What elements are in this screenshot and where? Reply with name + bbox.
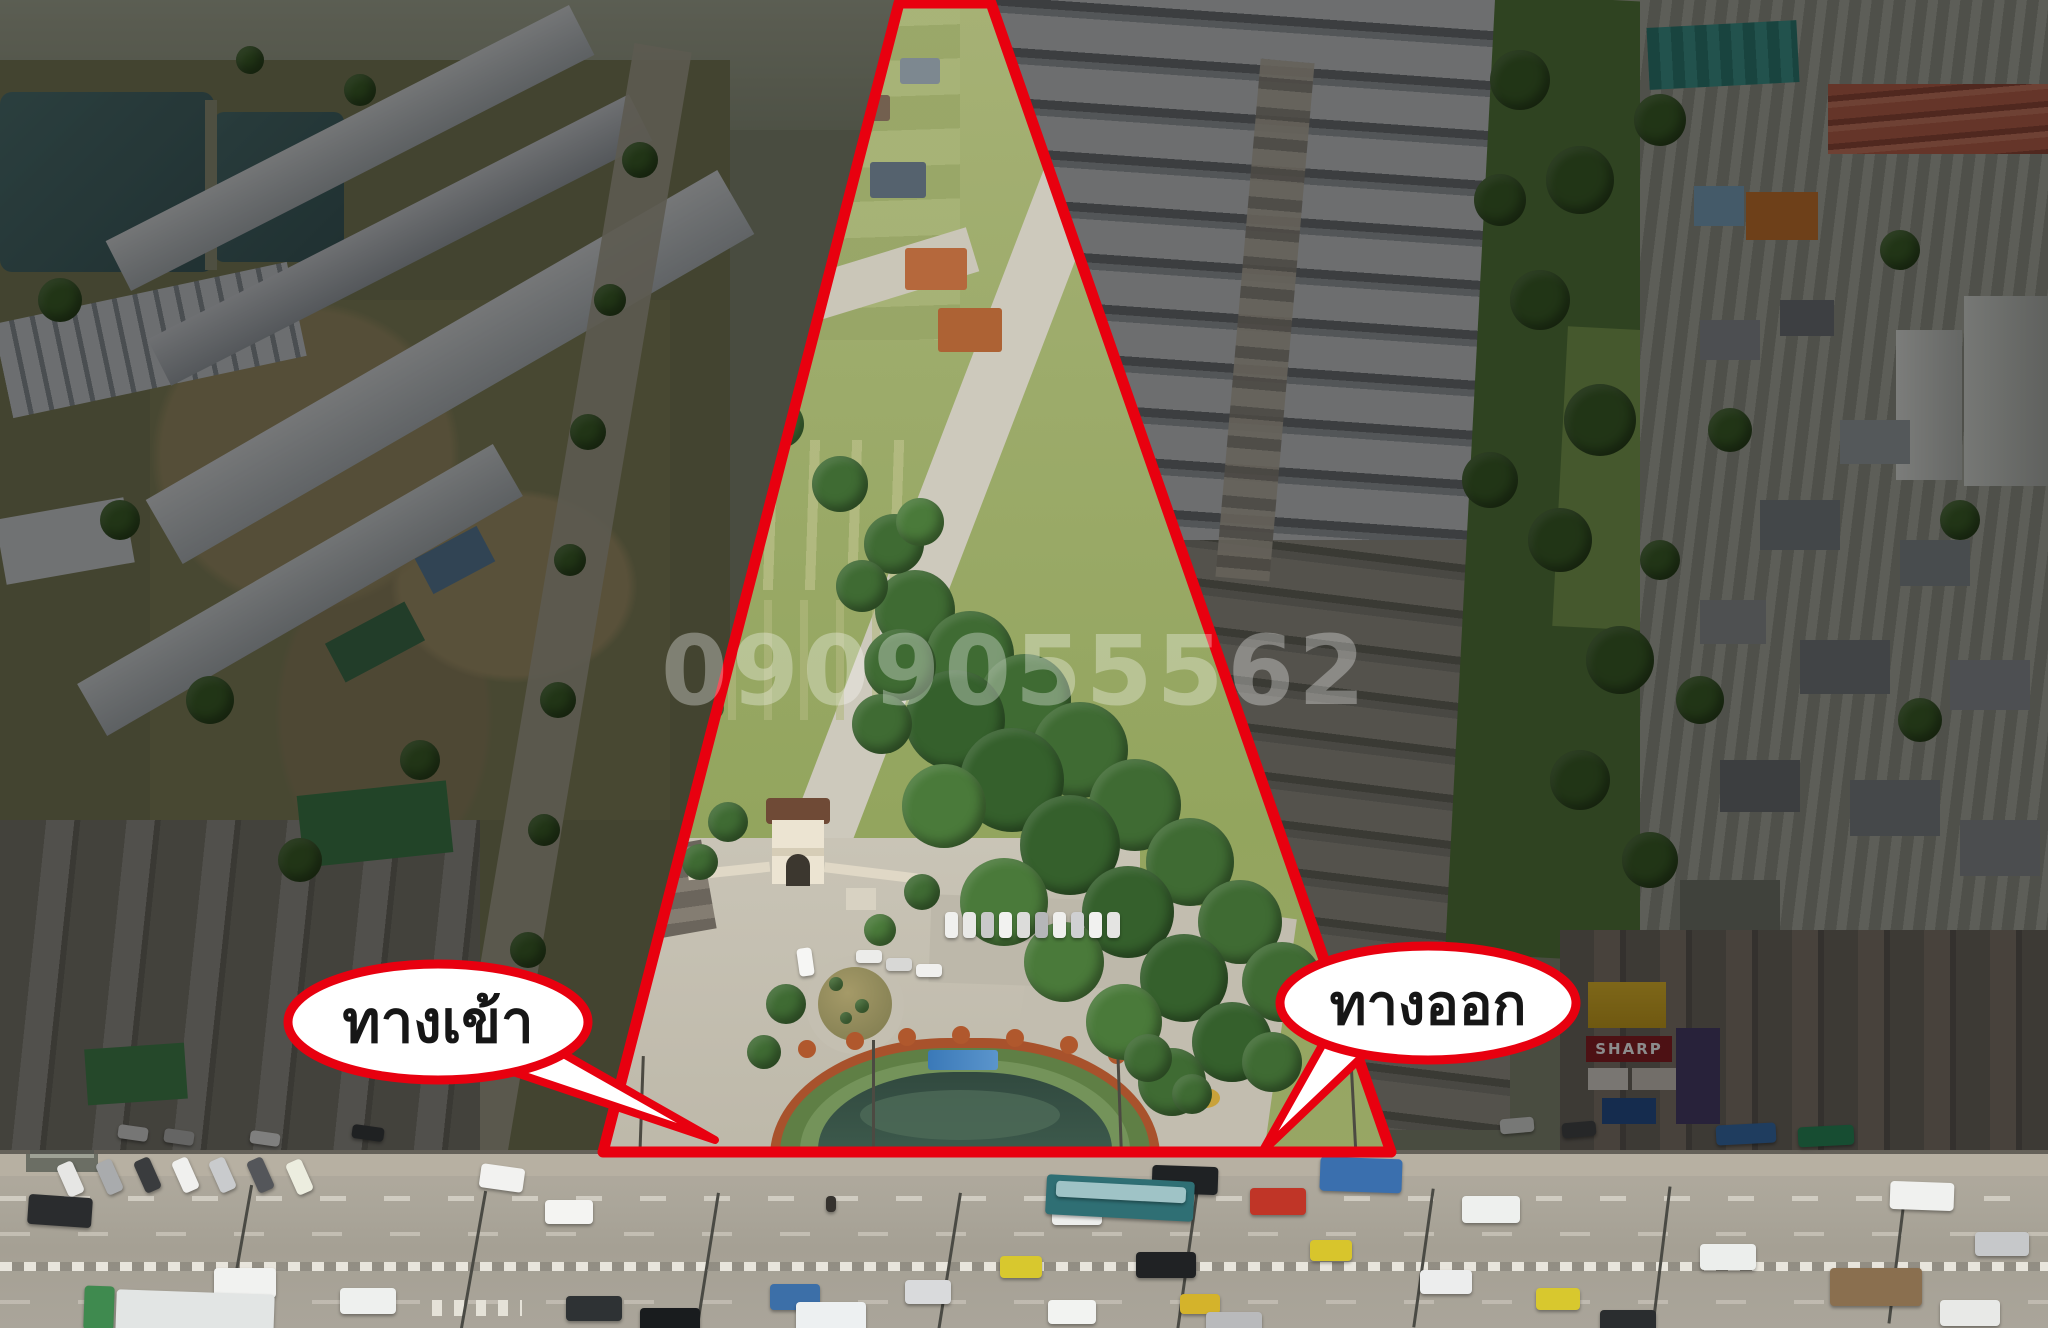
dim-mask: [0, 0, 2048, 1154]
exit-label: ทางออก: [1330, 973, 1527, 1038]
watermark-phone: 0909055562: [661, 615, 1369, 727]
aerial-photo: SHARP 0909055562 ทางเข้า ทางออก: [0, 0, 2048, 1328]
exit-callout-tail: [1262, 1040, 1366, 1152]
entrance-label: ทางเข้า: [342, 988, 533, 1056]
annotation-overlay: 0909055562 ทางเข้า ทางออก: [0, 0, 2048, 1328]
